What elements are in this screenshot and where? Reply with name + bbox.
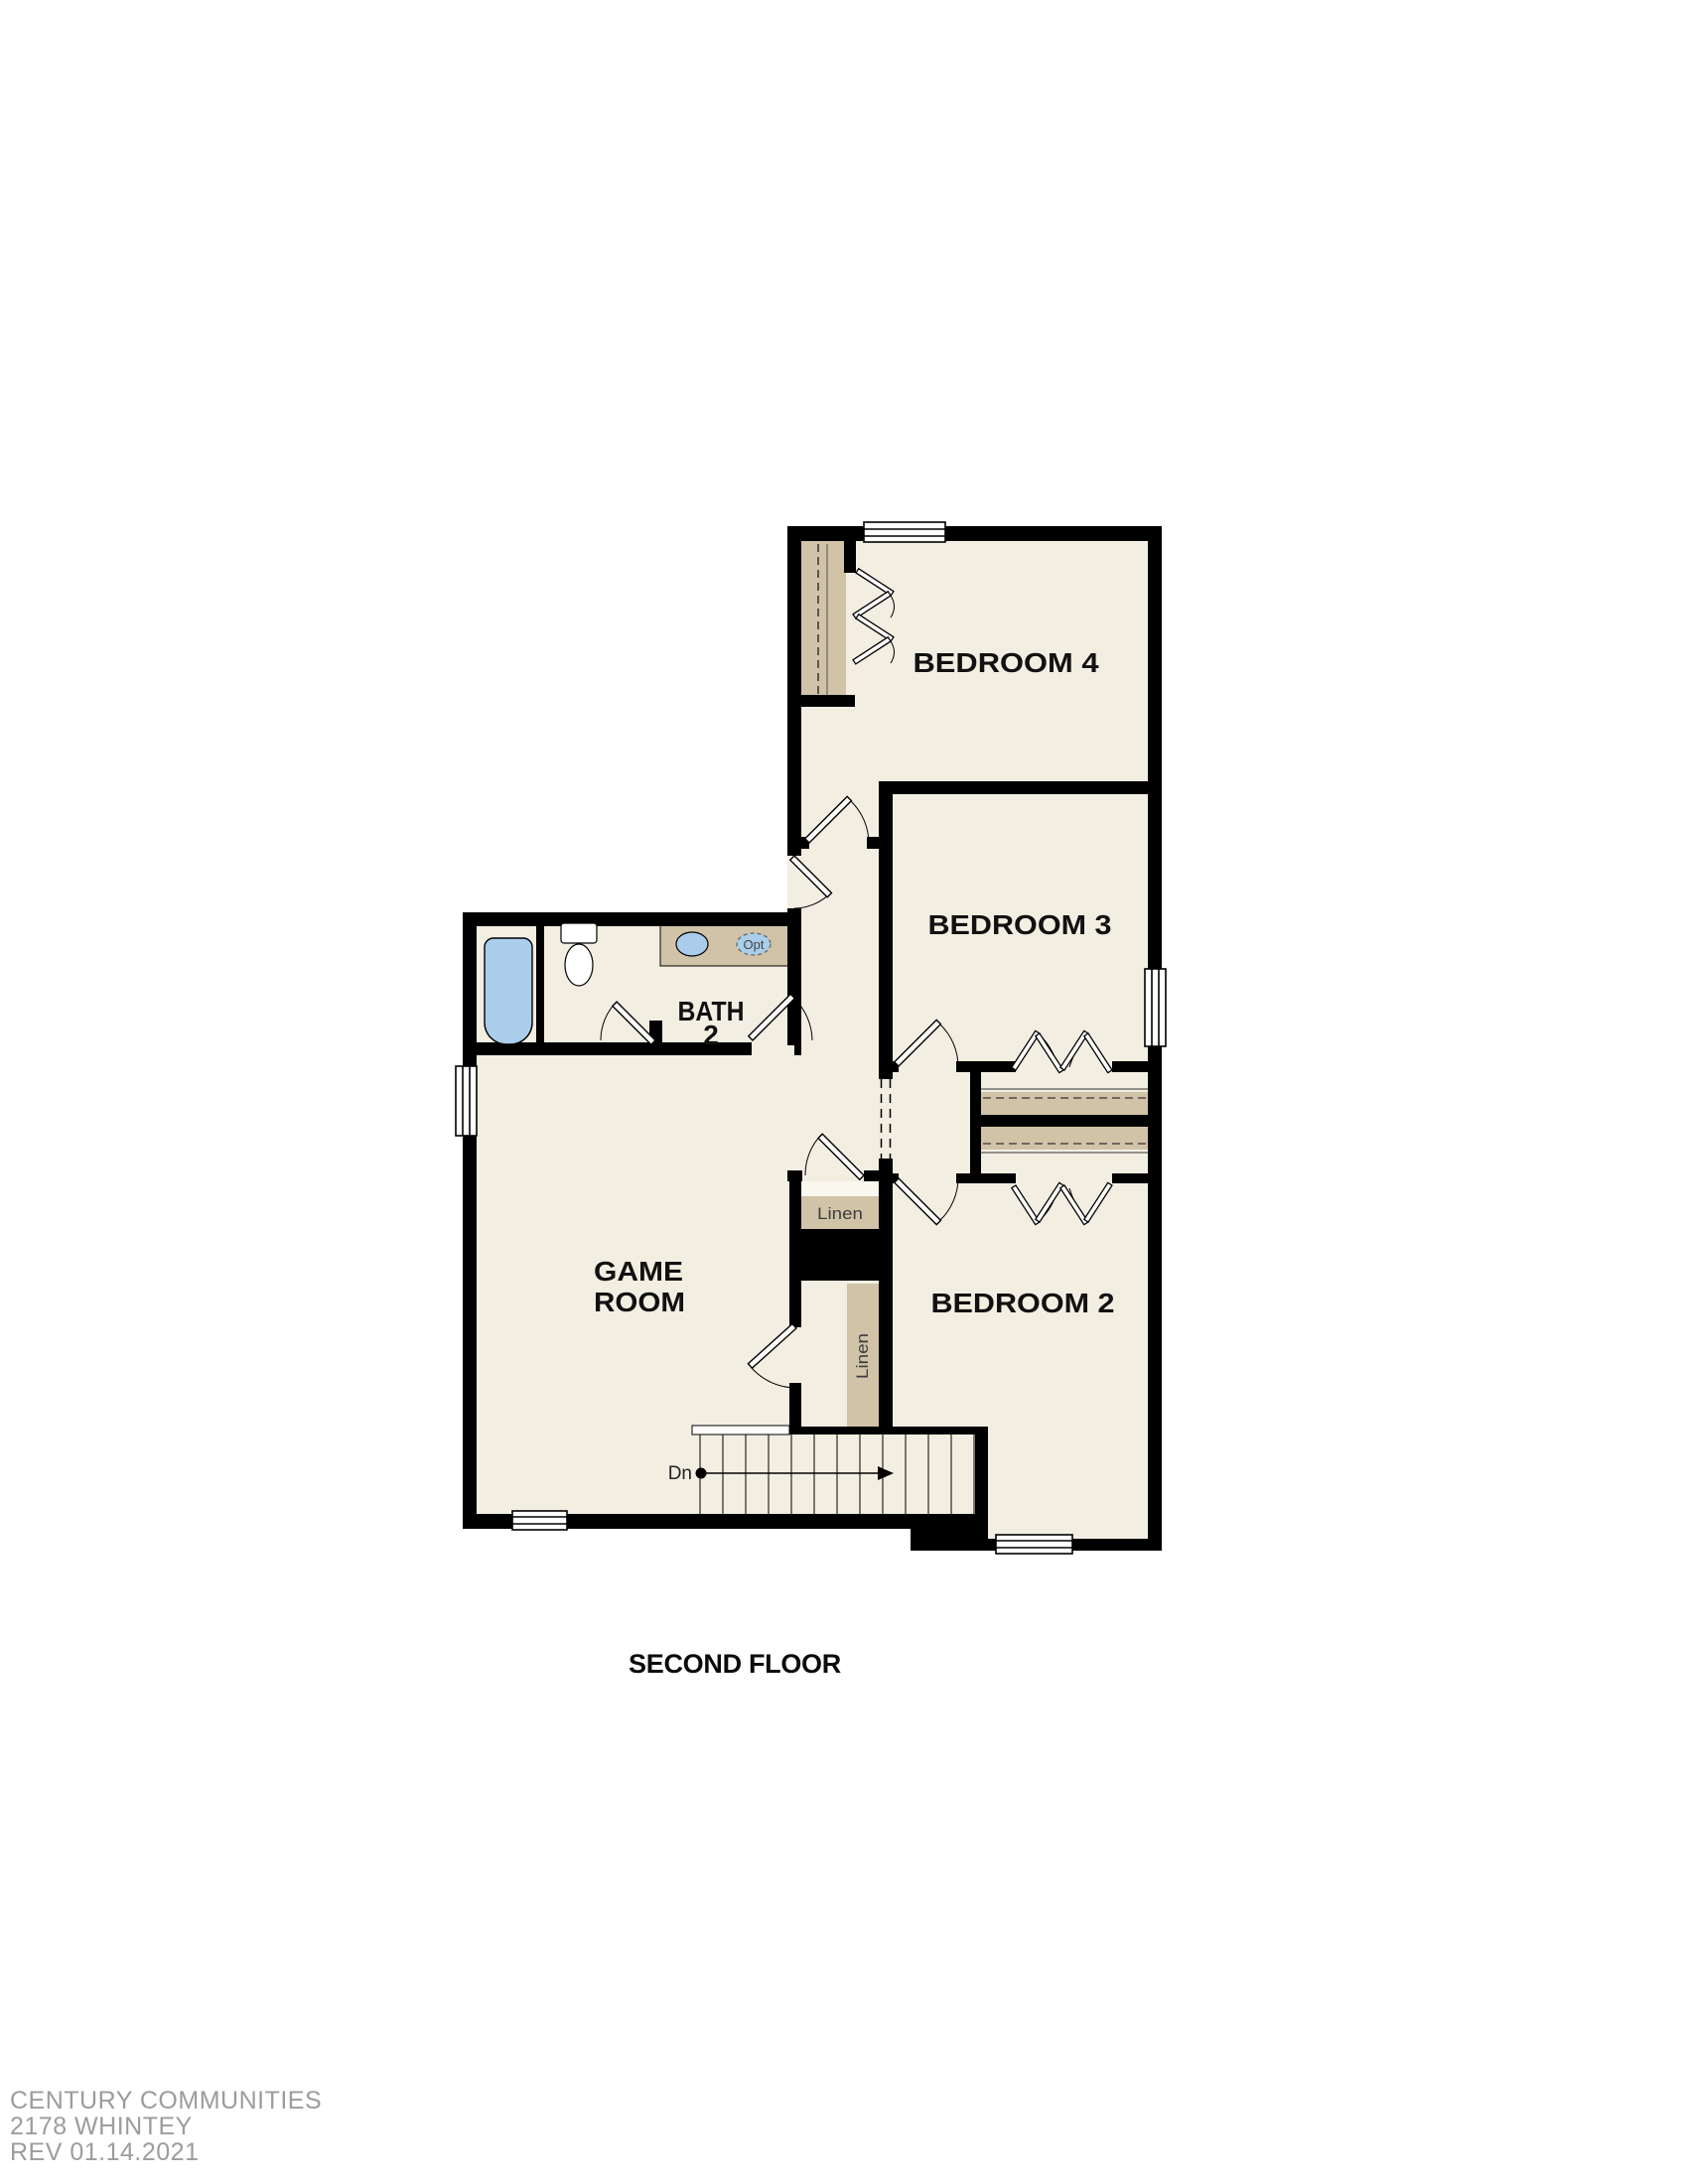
bedroom3-closet-shelf bbox=[981, 1092, 1148, 1115]
window bbox=[864, 522, 945, 542]
cased-opening bbox=[879, 1079, 893, 1159]
window bbox=[1145, 969, 1166, 1046]
window bbox=[456, 1066, 477, 1136]
sink-icon bbox=[676, 932, 708, 956]
room-label-bedroom4: BEDROOM 4 bbox=[914, 647, 1099, 678]
stair-landing-edge bbox=[692, 1426, 789, 1434]
room-label-bedroom3: BEDROOM 3 bbox=[928, 909, 1112, 940]
room-label-bath-line2: 2 bbox=[703, 1020, 719, 1050]
linen-lower-label: Linen bbox=[853, 1333, 872, 1379]
room-label-game-line1: GAME bbox=[594, 1256, 683, 1287]
bathtub-icon bbox=[485, 938, 532, 1044]
page: { "title": "SECOND FLOOR", "rooms": { "b… bbox=[0, 0, 1688, 2184]
room-label-bedroom2: BEDROOM 2 bbox=[931, 1288, 1115, 1318]
bedroom4-closet-shelf bbox=[801, 541, 846, 697]
floor-plan: Dn bbox=[0, 0, 1688, 2184]
footer-plan-number: 2178 WHINTEY bbox=[10, 2114, 322, 2139]
window bbox=[512, 1511, 567, 1530]
footer-company: CENTURY COMMUNITIES bbox=[10, 2088, 322, 2114]
plan-title: SECOND FLOOR bbox=[626, 1649, 844, 1680]
linen-upper-label: Linen bbox=[817, 1204, 863, 1223]
window bbox=[996, 1535, 1072, 1554]
optional-sink-label: Opt bbox=[744, 937, 765, 952]
bedroom2-closet-shelf bbox=[981, 1127, 1148, 1150]
footer-revision: REV 01.14.2021 bbox=[10, 2139, 322, 2165]
stair-direction-label: Dn bbox=[668, 1463, 692, 1484]
room-label-game-line2: ROOM bbox=[594, 1287, 685, 1317]
optional-sink-icon: Opt bbox=[737, 933, 771, 955]
footer: CENTURY COMMUNITIES 2178 WHINTEY REV 01.… bbox=[10, 2088, 322, 2165]
